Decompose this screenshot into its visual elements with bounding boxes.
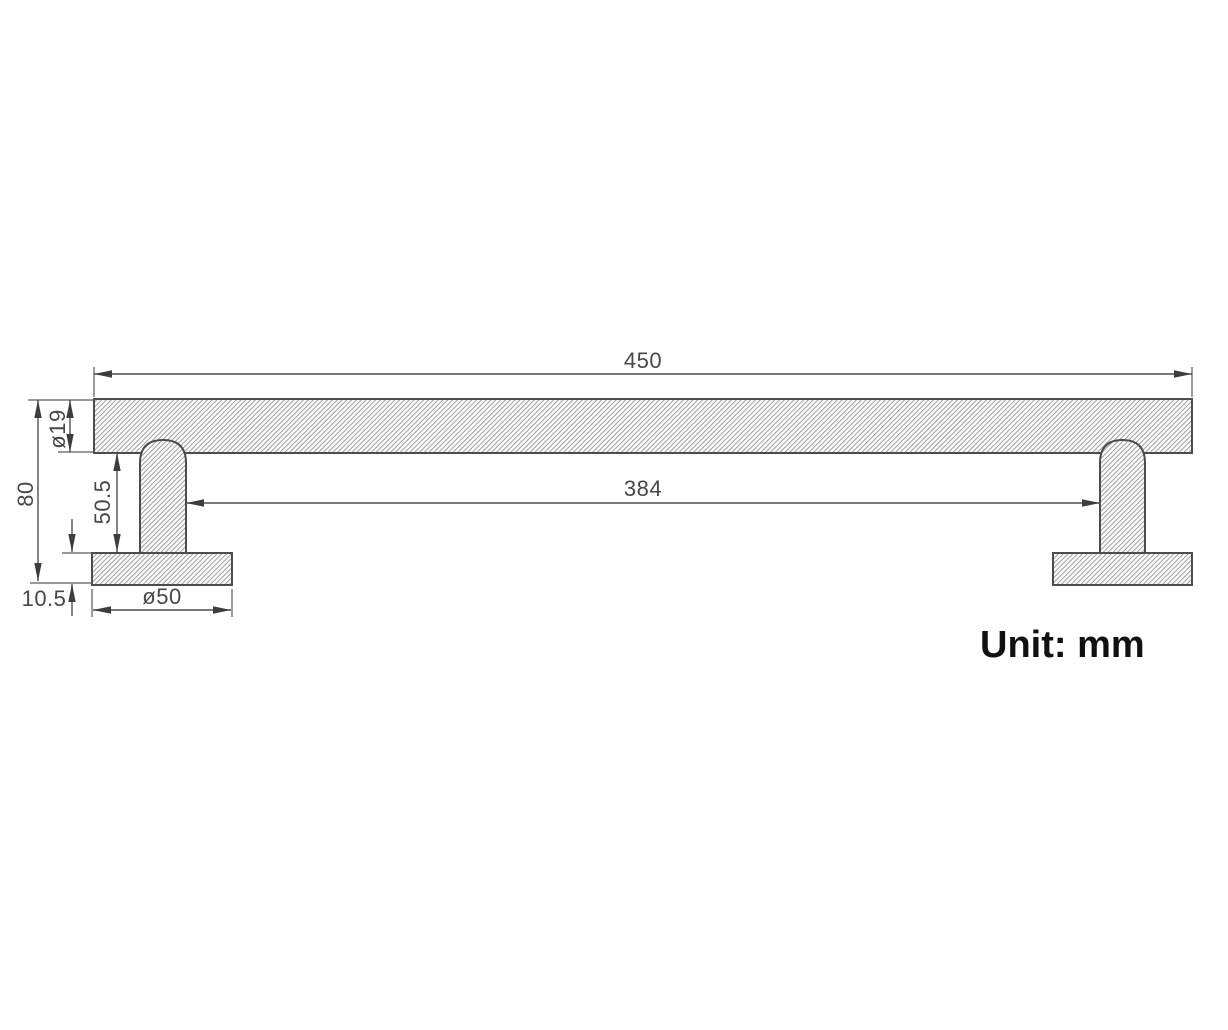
right-post-section	[1100, 440, 1145, 553]
dim-label-bar-diameter: ø19	[45, 409, 70, 448]
dim-label-overall-length: 450	[624, 348, 662, 373]
right-base-section	[1053, 553, 1192, 585]
towel-bar-dimension-drawing: 450 384 80 ø19 50.5	[0, 0, 1228, 1030]
dim-label-post-height: 50.5	[90, 480, 115, 525]
dimension-base-diameter: ø50	[92, 584, 232, 617]
dimension-bar-diameter: ø19	[45, 400, 94, 452]
dimension-post-height: 50.5	[90, 453, 117, 552]
dim-label-inner-span: 384	[624, 476, 662, 501]
dimension-base-thickness: 10.5	[22, 519, 92, 616]
dim-label-base-thickness: 10.5	[22, 586, 67, 611]
unit-note: Unit: mm	[980, 624, 1145, 666]
dimension-inner-span: 384	[186, 476, 1100, 503]
technical-drawing-canvas: 450 384 80 ø19 50.5	[0, 0, 1228, 1030]
left-base-section	[92, 553, 232, 585]
bar-section	[94, 399, 1192, 453]
left-post-section	[140, 440, 186, 553]
dim-label-base-diameter: ø50	[142, 584, 181, 609]
dimension-overall-length: 450	[94, 348, 1192, 397]
dim-label-overall-height: 80	[13, 481, 38, 506]
